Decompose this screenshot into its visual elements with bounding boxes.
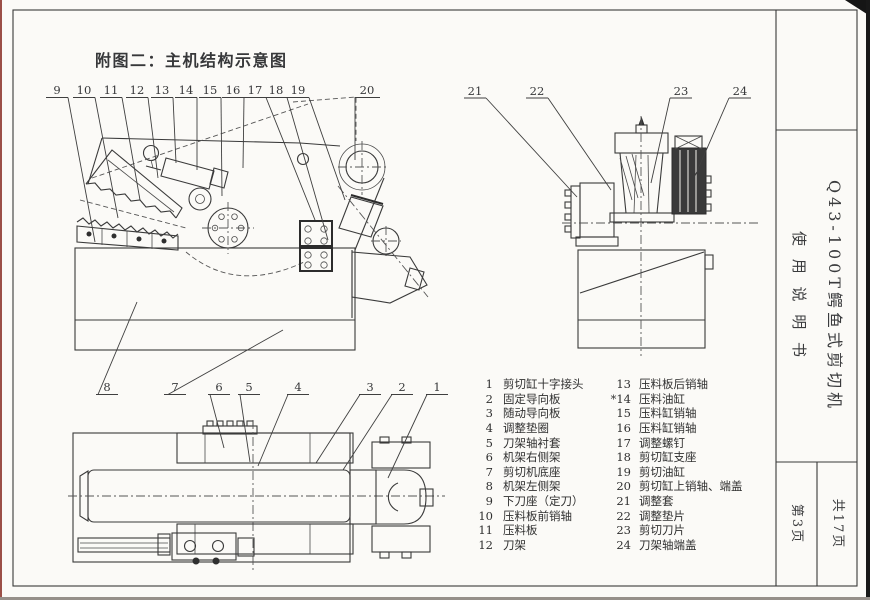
part-no: 1 [477,377,493,392]
parts-list-left: 1剪切缸十字接头 2固定导向板 3随动导向板 4调整垫圈 5刀架轴衬套 6机架右… [477,377,584,553]
part-name: 固定导向板 [503,392,561,407]
callout-6: 6 [215,380,222,394]
part-row: 12刀架 [477,538,584,553]
titleblock-doc-title: Q43-100T鳄鱼式剪切机 使 用 说 明 书 [780,131,852,461]
callout-24: 24 [733,84,748,98]
part-row: 22调整垫片 [598,509,743,524]
callout-3: 3 [366,380,373,394]
callout-12: 12 [130,83,145,97]
part-no: 2 [477,392,493,407]
part-row: *14压料油缸 [598,392,743,407]
part-row: 3随动导向板 [477,406,584,421]
part-no: 9 [477,494,493,509]
part-row: 13压料板后销轴 [598,377,743,392]
part-row: 10压料板前销轴 [477,509,584,524]
callout-15: 15 [203,83,218,97]
scan-edge-right [866,0,870,600]
part-name: 调整垫片 [639,509,685,524]
callout-4: 4 [294,380,301,394]
part-name: 剪切机底座 [503,465,561,480]
scan-edge-left [0,0,2,600]
callout-14: 14 [179,83,194,97]
part-name: 调整螺钉 [639,436,685,451]
part-name: 压料板 [503,523,538,538]
part-no: 21 [598,494,631,509]
plan-view [68,420,445,572]
part-no: 20 [598,479,631,494]
callout-2: 2 [398,380,405,394]
part-name: 刀架轴端盖 [639,538,697,553]
callout-9: 9 [53,83,60,97]
callout-19: 19 [291,83,306,97]
part-no: 17 [598,436,631,451]
part-row: 8机架左侧架 [477,479,584,494]
callout-5: 5 [245,380,252,394]
part-name: 压料板前销轴 [503,509,572,524]
callout-16: 16 [226,83,241,97]
machine-name: Q43-100T鳄鱼式剪切机 [816,131,852,461]
part-row: 1剪切缸十字接头 [477,377,584,392]
part-no: 5 [477,436,493,451]
manual-page: 附图二：主机结构示意图 9 10 11 12 13 14 15 16 17 18… [0,0,870,600]
part-no: 4 [477,421,493,436]
part-name: 机架右侧架 [503,450,561,465]
part-no: 12 [477,538,493,553]
callout-21: 21 [468,84,483,98]
part-row: 15压料缸销轴 [598,406,743,421]
part-name: 压料缸销轴 [639,406,697,421]
doc-name: 使 用 说 明 书 [782,131,816,461]
part-no: 19 [598,465,631,480]
callout-18: 18 [269,83,284,97]
callout-1: 1 [433,380,440,394]
part-no: *14 [598,392,631,407]
part-row: 6机架右侧架 [477,450,584,465]
current-page: 第3页 [781,462,811,586]
part-row: 17调整螺钉 [598,436,743,451]
part-name: 调整垫圈 [503,421,549,436]
part-name: 压料板后销轴 [639,377,708,392]
end-view [562,116,760,356]
part-name: 压料缸销轴 [639,421,697,436]
callout-13: 13 [155,83,170,97]
part-row: 9下刀座（定刀） [477,494,584,509]
callout-7: 7 [171,380,178,394]
part-no: 24 [598,538,631,553]
part-no: 13 [598,377,631,392]
part-row: 24刀架轴端盖 [598,538,743,553]
part-row: 5刀架轴衬套 [477,436,584,451]
total-pages: 共17页 [822,462,852,586]
callout-22: 22 [530,84,545,98]
part-row: 4调整垫圈 [477,421,584,436]
part-name: 压料油缸 [639,392,685,407]
callout-20: 20 [360,83,375,97]
part-name: 刀架 [503,538,526,553]
callout-17: 17 [248,83,263,97]
part-no: 23 [598,523,631,538]
part-name: 下刀座（定刀） [503,494,584,509]
part-no: 16 [598,421,631,436]
figure-title: 附图二：主机结构示意图 [95,47,288,71]
part-no: 7 [477,465,493,480]
callout-10: 10 [77,83,92,97]
part-no: 15 [598,406,631,421]
part-row: 18剪切缸支座 [598,450,743,465]
part-no: 11 [477,523,493,538]
part-row: 20剪切缸上销轴、端盖 [598,479,743,494]
part-name: 剪切缸十字接头 [503,377,584,392]
part-name: 剪切缸上销轴、端盖 [639,479,743,494]
part-no: 6 [477,450,493,465]
callout-8: 8 [103,380,110,394]
part-name: 调整套 [639,494,674,509]
part-row: 19剪切油缸 [598,465,743,480]
parts-list-right: 13压料板后销轴 *14压料油缸 15压料缸销轴 16压料缸销轴 17调整螺钉 … [598,377,743,553]
part-no: 18 [598,450,631,465]
part-row: 11压料板 [477,523,584,538]
part-no: 3 [477,406,493,421]
part-no: 8 [477,479,493,494]
main-side-view [75,97,428,350]
part-row: 7剪切机底座 [477,465,584,480]
part-name: 剪切油缸 [639,465,685,480]
callout-23: 23 [674,84,689,98]
part-row: 23剪切刀片 [598,523,743,538]
callout-11: 11 [104,83,119,97]
part-name: 剪切缸支座 [639,450,697,465]
part-name: 机架左侧架 [503,479,561,494]
part-no: 10 [477,509,493,524]
part-name: 剪切刀片 [639,523,685,538]
part-row: 16压料缸销轴 [598,421,743,436]
part-row: 21调整套 [598,494,743,509]
part-name: 刀架轴衬套 [503,436,561,451]
part-name: 随动导向板 [503,406,561,421]
part-row: 2固定导向板 [477,392,584,407]
part-no: 22 [598,509,631,524]
